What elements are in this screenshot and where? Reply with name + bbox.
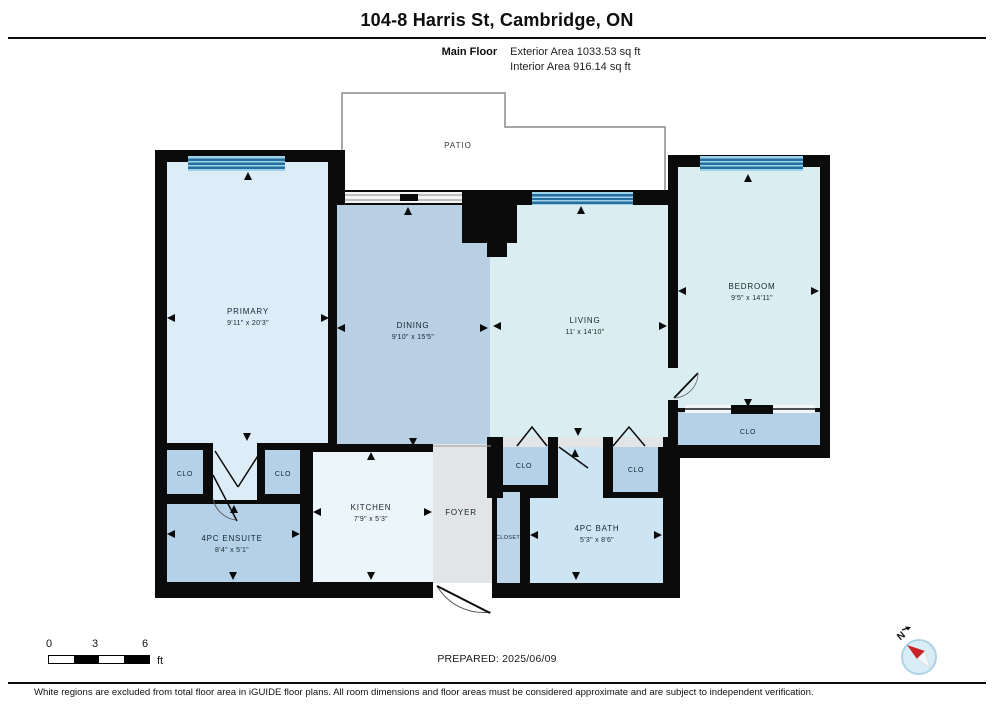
bottom-divider (8, 682, 986, 684)
patio-outline (342, 93, 665, 196)
label-bedroom-closet: CLO (740, 429, 756, 436)
disclaimer-text: White regions are excluded from total fl… (34, 687, 974, 698)
scale-tick-6: 6 (142, 638, 148, 650)
entry-door (433, 583, 492, 613)
label-ensuite: 4PC ENSUITE (201, 534, 262, 543)
scale-tick-3: 3 (92, 638, 98, 650)
floorplan-page: 104-8 Harris St, Cambridge, ON Main Floo… (0, 0, 994, 720)
window-living (532, 192, 633, 205)
label-bath-closet-left: CLO (516, 463, 532, 470)
scale-tick-0: 0 (46, 638, 52, 650)
floorplan-drawing: PATIO PRIMARY 9'11" x 20'3" DINING 9'10"… (0, 0, 994, 720)
compass-north-label: N (895, 630, 908, 643)
dims-dining: 9'10" x 15'5" (392, 334, 435, 341)
room-primary (167, 162, 328, 443)
label-patio: PATIO (444, 141, 472, 150)
label-primary: PRIMARY (227, 307, 269, 316)
room-vestibule (213, 443, 257, 500)
label-bath-closet-right: CLO (628, 467, 644, 474)
label-closet-left: CLO (177, 471, 193, 478)
label-bedroom: BEDROOM (729, 282, 776, 291)
compass-icon: N (889, 626, 945, 682)
dims-ensuite: 8'4" x 5'1" (215, 547, 249, 554)
scale-ticks: 0 3 6 (48, 638, 178, 652)
dims-bath: 5'3" x 8'6" (580, 537, 614, 544)
label-foyer: FOYER (445, 508, 477, 517)
window-bedroom (700, 156, 803, 171)
dims-living: 11' x 14'10" (566, 329, 605, 336)
window-primary (188, 156, 285, 171)
sliding-door-dining (345, 192, 462, 203)
room-bath-entry (558, 447, 603, 498)
label-kitchen: KITCHEN (351, 503, 392, 512)
label-dining: DINING (397, 321, 430, 330)
prepared-date: PREPARED: 2025/06/09 (0, 653, 994, 665)
label-closet: CLOSET (496, 535, 520, 541)
label-living: LIVING (569, 316, 600, 325)
dims-kitchen: 7'9" x 5'3" (354, 516, 388, 523)
sliding-door-bedroom-closet (685, 405, 815, 414)
label-closet-right: CLO (275, 471, 291, 478)
label-bath: 4PC BATH (575, 524, 620, 533)
dims-primary: 9'11" x 20'3" (227, 320, 269, 327)
dims-bedroom: 9'5" x 14'11" (731, 295, 773, 302)
